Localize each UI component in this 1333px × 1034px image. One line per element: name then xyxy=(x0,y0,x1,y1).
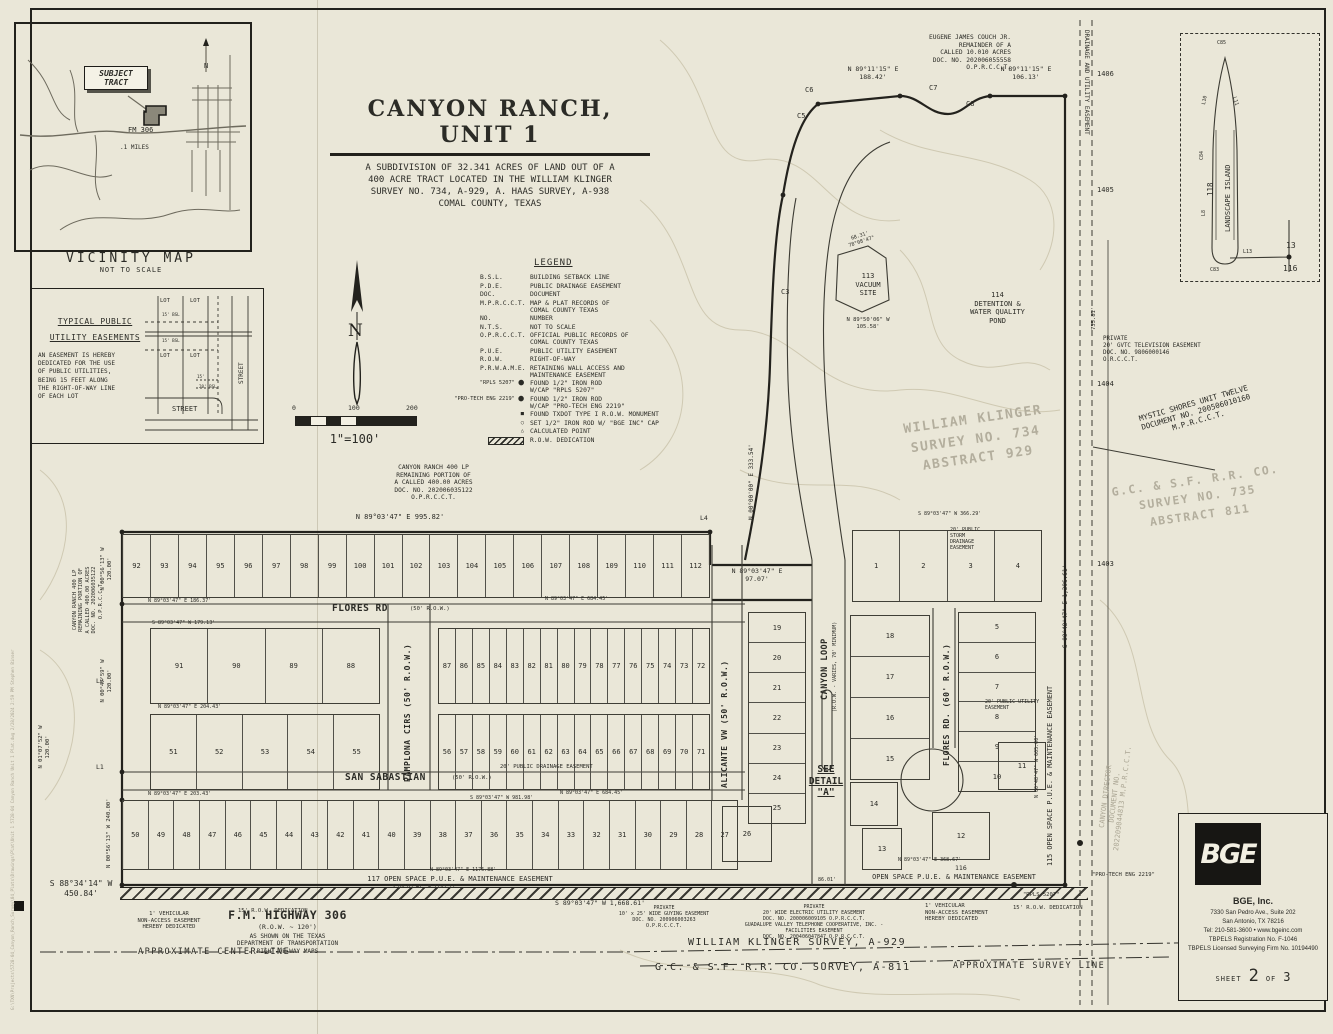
note-approx-center: APPROXIMATE CENTER LINE xyxy=(138,947,290,957)
esmtbox-lot-2: LOT xyxy=(190,298,200,305)
esmtbox-street-h: STREET xyxy=(172,405,197,414)
bearing-s883414: S 88°34'14" W 450.84' xyxy=(40,879,122,899)
hwy-fm306-row: (R.O.W. ~ 120') xyxy=(205,924,370,932)
esmt-open-space-115: 115 OPEN SPACE P.U.E. & MAINTENANCE EASE… xyxy=(1046,686,1054,866)
street-san-sabastian-row: (50' R.O.W.) xyxy=(452,775,492,782)
esmt-guying: PRIVATE 10' x 25' WIDE GUYING EASEMENT D… xyxy=(598,905,730,929)
station-1404: 1404 xyxy=(1097,380,1114,389)
note-mystic-shores: MYSTIC SHORES UNIT TWELVE DOCUMENT NO. 2… xyxy=(1108,375,1284,450)
detail-a-c84: C84 xyxy=(1199,151,1205,160)
street-alicante: ALICANTE VW (50' R.O.W.) xyxy=(720,660,730,788)
street-pamplona: PAMPLONA CIRS (50' R.O.W.) xyxy=(403,644,413,782)
label-layer: EUGENE JAMES COUCH JR. REMAINDER OF A CA… xyxy=(0,0,1333,1034)
esmtbox-bsl-1: 15' BSL xyxy=(162,312,180,317)
note-vehicular-left: 1' VEHICULAR NON-ACCESS EASEMENT HEREBY … xyxy=(128,911,210,931)
bearing-s36629: S 89°03'47" W 366.29' xyxy=(918,511,981,517)
vicinity-north-n: N xyxy=(204,62,208,71)
bearing-117688: N 89°03'47" E 1176.88' xyxy=(430,867,496,873)
street-flores-rd-row: (50' R.O.W.) xyxy=(410,606,450,613)
street-flores-rd: FLORES RD xyxy=(332,603,388,615)
bearing-s17913: S 89°03'47" W 179.13' xyxy=(152,620,215,626)
curve-c6: C6 xyxy=(805,86,813,95)
curve-c3: C3 xyxy=(781,288,789,297)
station-1403: 1403 xyxy=(1097,560,1114,569)
bearing-9707: N 89°03'47" E 97.07' xyxy=(726,568,788,584)
dim-n005613-120: N 00°56'13" W 120.00' xyxy=(100,538,113,600)
bearing-n000000-33354: N 00°00'00" E 333.54' xyxy=(748,444,755,520)
station-1406: 1406 xyxy=(1097,70,1114,79)
street-san-sabastian: SAN SABASTIAN xyxy=(345,772,426,784)
detail-a-l10: L10 xyxy=(1201,95,1209,105)
esmt-open-space-117: 117 OPEN SPACE P.U.E. & MAINTENANCE EASE… xyxy=(250,875,670,884)
file-path-note: G:\TXN\Projects\5728-04_Canyon_Ranch_Sur… xyxy=(10,649,15,1010)
bearing-s004847-139661: S 00°48'47" E 1,396.61' xyxy=(1062,565,1069,648)
bearing-68445-b: N 89°03'47" E 684.45' xyxy=(560,790,623,796)
street-flores-rd-60: FLORES RD. (60' R.O.W.) xyxy=(942,644,952,766)
station-1405: 1405 xyxy=(1097,186,1114,195)
detail-a-c83: C83 xyxy=(1210,267,1219,273)
bearing-36867: N 89°03'47" E 368.67' xyxy=(898,857,961,863)
dim-8601: 86.01' xyxy=(818,877,836,883)
esmtbox-lot-3: LOT xyxy=(160,353,170,360)
esmtbox-bsl-2: 15' BSL xyxy=(162,338,180,343)
bearing-s119312: S 89°03'47" W 1193.12' xyxy=(350,884,500,890)
detail-a-l13: L13 xyxy=(1243,249,1252,255)
plat-sheet: N VICINITY MAP NOT TO SCALE SUBJECT TRAC… xyxy=(0,0,1333,1034)
bearing-99582: N 89°03'47" E 995.82' xyxy=(300,513,500,522)
pt-l4: L4 xyxy=(700,515,708,523)
note-drainage-utility-esmt: DRAINAGE AND UTILITY EASEMENT xyxy=(1083,30,1090,135)
note-canyon-director: CANYON DIRECTOR DOCUMENT NO. 20220904481… xyxy=(1094,734,1135,861)
dim-n005613-240: N 00°56'13" W 240.00' xyxy=(106,798,113,868)
detail-a-landscape: LANDSCAPE ISLAND xyxy=(1224,165,1233,232)
pt-l1: L1 xyxy=(96,764,104,772)
esmt-electric: PRIVATE 20' WIDE ELECTRIC UTILITY EASEME… xyxy=(733,904,895,941)
cap-protech: "PRO-TECH ENG 2219" xyxy=(1092,872,1155,879)
dim-n004847-605: N 00°48'47" W 605.00' xyxy=(1034,735,1040,798)
detail-a-118: 118 xyxy=(1206,182,1215,196)
esmt-drainage-20: 20' PUBLIC DRAINAGE EASEMENT xyxy=(500,764,593,771)
esmt-storm-drain: 20' PUBLIC STORM DRAINAGE EASEMENT xyxy=(950,527,980,551)
note-row-dedication-right: 15' R.O.W. DEDICATION xyxy=(1013,905,1083,912)
dim-n895006: N 89°50'06" W 105.58' xyxy=(836,317,900,330)
curve-c5: C5 xyxy=(797,112,805,121)
detail-a-116: 116 xyxy=(1283,264,1297,274)
note-row-dedication-left: 15' R.O.W. DEDICATION xyxy=(238,908,308,915)
note-canyon-ranch-400: CANYON RANCH 400 LP REMAINING PORTION OF… xyxy=(376,464,491,502)
esmt-pue-20: 20' PUBLIC UTILITY EASEMENT xyxy=(985,699,1039,711)
parcel-116: 116 xyxy=(955,865,967,873)
vicinity-miles: .1 MILES xyxy=(120,144,149,151)
esmt-open-space-116: OPEN SPACE P.U.E. & MAINTENANCE EASEMENT xyxy=(845,873,1063,881)
cap-rpls5207: "RPLS 5207" xyxy=(1023,892,1059,899)
bearing-20343: N 89°03'47" E 203.43' xyxy=(148,791,211,797)
detail-a-l11: L11 xyxy=(1231,96,1239,106)
street-canyon-loop-row: (R.O.W. - VARIES, 70' MINIMUM) xyxy=(832,622,838,712)
esmtbox-lot-4: LOT xyxy=(190,353,200,360)
vicinity-fm306: FM 306 xyxy=(128,126,153,135)
esmtbox-20bsl: 20' BSL xyxy=(199,384,217,389)
note-approx-survey: APPROXIMATE SURVEY LINE xyxy=(953,961,1105,971)
dim-n010752-120: N 01°07'52" W 120.00' xyxy=(38,716,51,778)
note-see-detail-a: SEE DETAIL "A" xyxy=(800,764,852,799)
note-gvtc-esmt: PRIVATE 20' GVTC TELEVISION EASEMENT DOC… xyxy=(1103,336,1201,364)
bearing-s98198: S 89°03'47" W 981.98' xyxy=(470,795,533,801)
esmtbox-15: 15' xyxy=(197,374,205,379)
curve-c7: C7 xyxy=(929,84,937,93)
note-vehicular-right: 1' VEHICULAR NON-ACCESS EASEMENT HEREBY … xyxy=(925,903,988,923)
esmtbox-lot-1: LOT xyxy=(160,298,170,305)
bearing-18637: N 89°03'47" E 186.37' xyxy=(148,598,211,604)
note-eugene-couch: EUGENE JAMES COUCH JR. REMAINDER OF A CA… xyxy=(893,34,1011,72)
bearing-20443: N 89°03'47" E 204.43' xyxy=(158,704,221,710)
curve-c8: C8 xyxy=(966,100,974,109)
detail-a-c85: C85 xyxy=(1217,40,1226,46)
dim-6831: 68.31' 78°08'47" xyxy=(838,226,884,251)
detail-a-l8: L8 xyxy=(1201,210,1207,216)
bearing-n891115-10613: N 89°11'15" E 106.13' xyxy=(995,66,1057,82)
detail-a-13: 13 xyxy=(1286,241,1296,251)
street-canyon-loop: CANYON LOOP xyxy=(820,638,830,700)
esmtbox-street-v: STREET xyxy=(238,362,245,384)
survey-gcsf-735: G.C. & S.F. R.R. CO. SURVEY NO. 735 ABST… xyxy=(1090,458,1305,538)
bearing-n891115-18842: N 89°11'15" E 188.42' xyxy=(842,66,904,82)
bearing-68445-a: N 89°03'47" E 684.45' xyxy=(545,596,608,602)
survey-william-klinger-734: WILLIAM KLINGER SURVEY NO. 734 ABSTRACT … xyxy=(875,397,1076,482)
dim-73581: 735.81' xyxy=(1091,307,1098,330)
site-114-detention: 114 DETENTION & WATER QUALITY POND xyxy=(950,291,1045,325)
pt-l2: L2 xyxy=(96,678,104,686)
site-113-vacuum: 113 VACUUM SITE xyxy=(838,272,898,298)
survey-gcsf-a811: G.C. & S.F. R.R. CO. SURVEY, A-811 xyxy=(655,962,911,974)
